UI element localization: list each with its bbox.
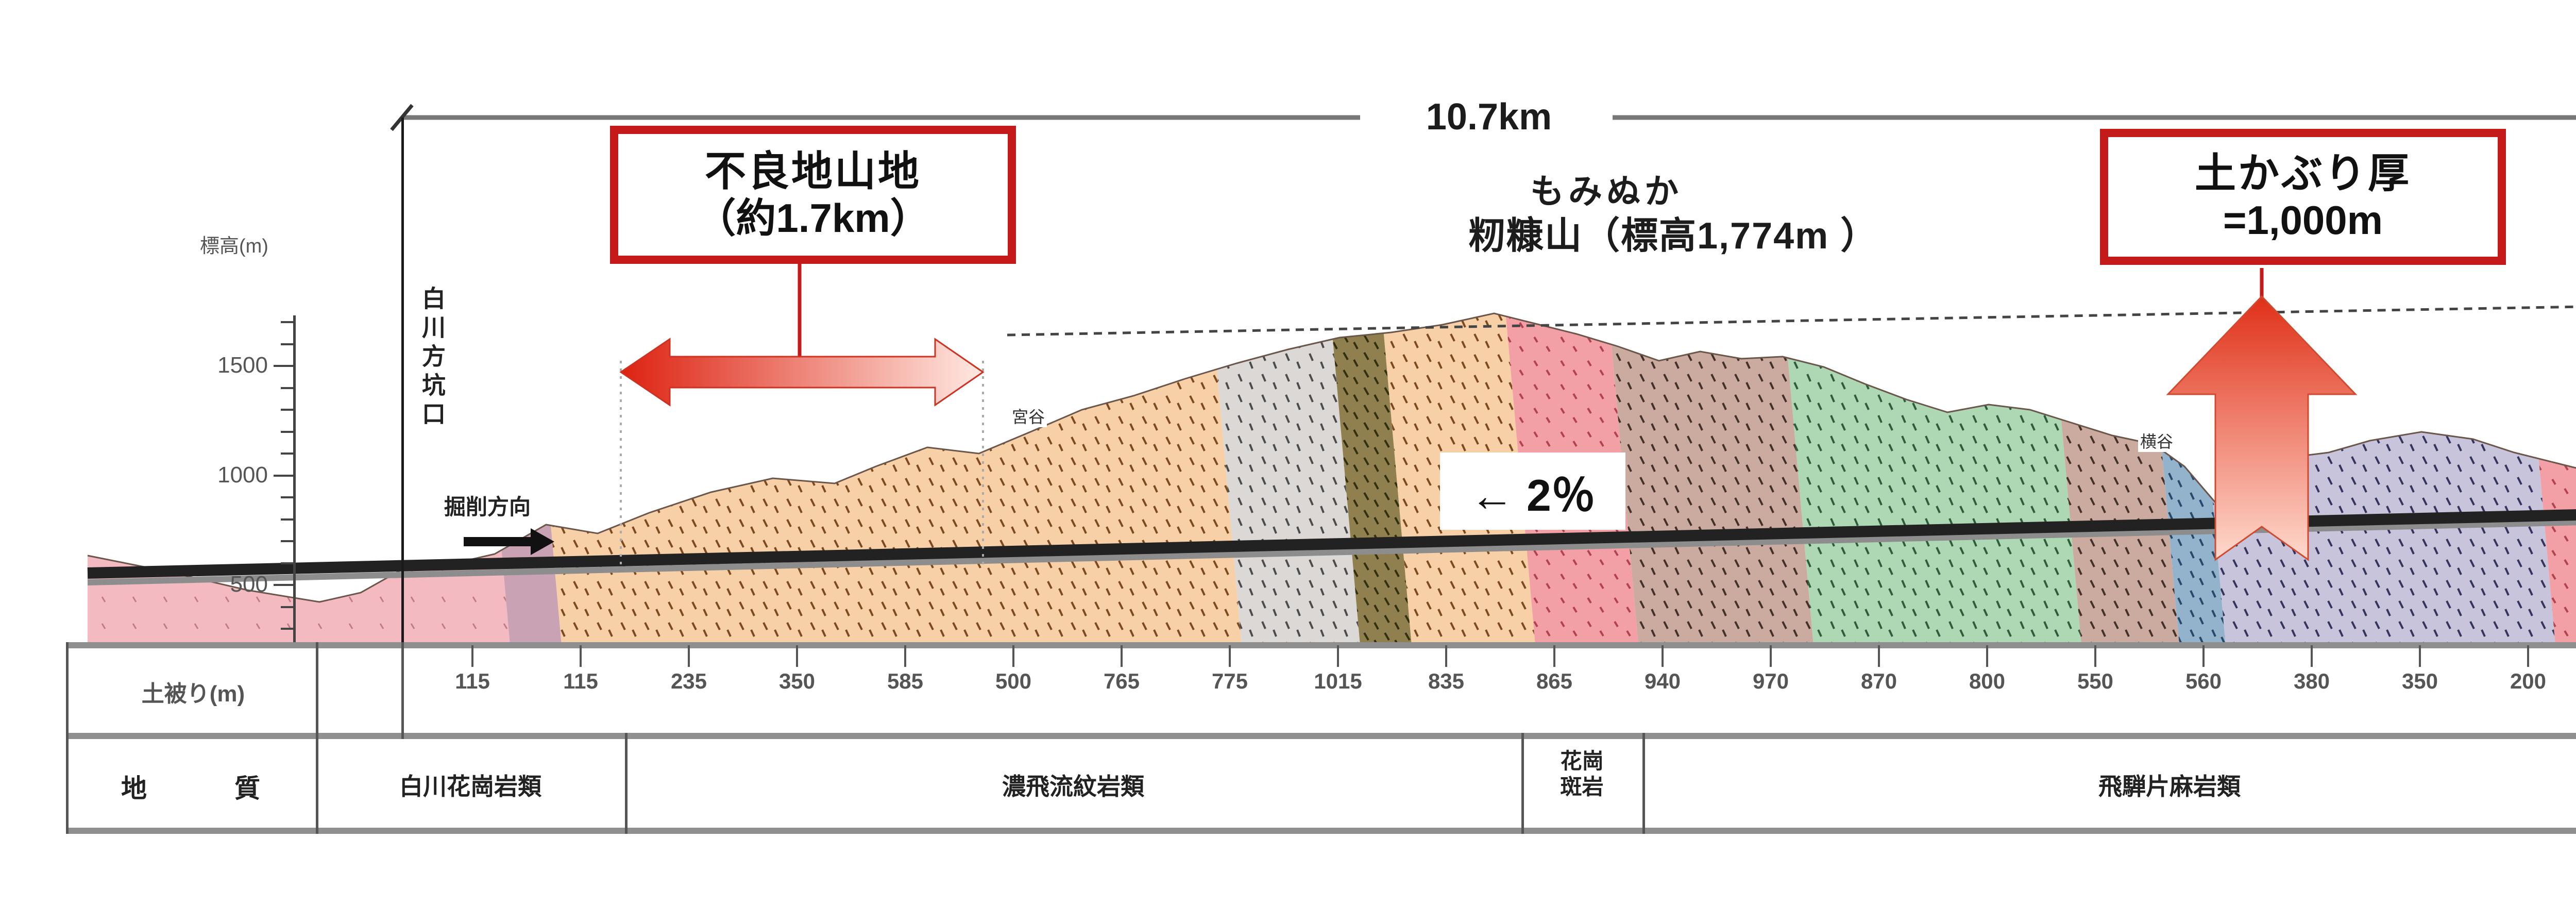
cover-value: 380 [2265,669,2358,694]
valley-right-label: 横谷 [2138,432,2175,452]
bad-ground-box: 不良地山地 （約1.7km） [610,126,1016,264]
cover-value: 235 [642,669,735,694]
cover-value: 115 [426,669,519,694]
geology-cell-nohi: 濃飛流紋岩類 [625,768,1521,802]
mountain-name: 籾糠山（標高1,774m ） [1468,213,1878,259]
cover-tick [2419,645,2421,667]
geology-cell-porphyry-line1: 花崗 [1521,748,1642,774]
excavation-direction-label: 掘削方向 [444,490,531,521]
cover-value: 350 [2374,669,2466,694]
cover-tick [1012,645,1014,667]
cover-tick [1986,645,1988,667]
excavation-direction-arrowhead [531,528,554,555]
cover-value: 870 [1833,669,1925,694]
axis-tick [274,475,294,477]
geology-cell-shirakawa: 白川花崗岩類 [326,768,615,802]
cover-value: 800 [1941,669,2033,694]
cover-value: 115 [534,669,627,694]
cover-tick [580,645,582,667]
cover-row-header: 土被り(m) [82,675,304,708]
cover-tick [688,645,690,667]
left-portal-label: 白川方坑口 [415,286,449,430]
table-top-border [66,642,2576,648]
cover-tick [1770,645,1772,667]
geology-cell-porphyry: 花崗 斑岩 [1521,748,1642,800]
cover-value: 500 [967,669,1060,694]
axis-tick [281,321,294,323]
excavation-direction-arrow [464,537,531,546]
table-mid-border [66,733,2576,739]
geology-cell-hida: 飛騨片麻岩類 [1642,768,2576,802]
geology-cell-porphyry-line2: 斑岩 [1521,774,1642,800]
valley-left-label: 宮谷 [1010,407,1047,427]
axis-tick-label: 500 [180,572,268,597]
cover-tick [1337,645,1339,667]
cover-tick [1445,645,1447,667]
cover-value: 865 [1508,669,1601,694]
cover-tick [1878,645,1880,667]
geology-header-char1: 地 [121,768,147,805]
total-length-label: 10.7km [1370,96,1607,138]
axis-tick [281,387,294,389]
axis-tick [274,365,294,367]
axis-tick [274,584,294,586]
cover-value: 1015 [1292,669,1384,694]
bad-ground-line2: （約1.7km） [696,195,930,242]
elevation-axis-title: 標高(m) [200,230,268,258]
cover-tick [1553,645,1555,667]
overburden-box: 土かぶり厚 =1,000m [2100,129,2506,265]
gradient-label: ← 2％ [1440,452,1625,530]
cover-value: 550 [2049,669,2142,694]
cover-tick [904,645,906,667]
cover-value: 765 [1075,669,1168,694]
cover-value: 350 [751,669,843,694]
table-header-sep [316,642,318,834]
axis-tick [281,431,294,433]
cover-tick [2094,645,2096,667]
geology-header-char2: 質 [234,768,260,805]
axis-tick [281,606,294,608]
table-portal-sep-row1 [401,642,404,739]
geology-row-header: 地 質 [72,768,309,805]
overburden-line2: =1,000m [2223,197,2383,244]
axis-tick [281,628,294,630]
axis-tick [281,343,294,345]
table-left-border [66,642,69,834]
cover-tick [1229,645,1231,667]
cover-tick [796,645,798,667]
cover-tick [2311,645,2313,667]
cover-value: 200 [2482,669,2574,694]
cover-value: 585 [859,669,952,694]
cover-value: 560 [2157,669,2250,694]
cover-value: 970 [1724,669,1817,694]
bad-ground-line1: 不良地山地 [705,148,921,195]
axis-tick [281,518,294,521]
axis-tick-label: 1500 [180,353,268,378]
cover-tick [1662,645,1664,667]
axis-tick [281,540,294,542]
overburden-line1: 土かぶり厚 [2195,150,2411,197]
cover-tick [2202,645,2205,667]
cover-tick [471,645,473,667]
left-portal-line [401,118,404,645]
axis-tick [281,452,294,455]
cover-tick [1121,645,1123,667]
cover-tick [2527,645,2529,667]
axis-tick [281,409,294,411]
ridge-dashed-line [1007,305,2576,335]
mountain-label: もみぬか 籾糠山（標高1,774m ） [1468,170,1878,259]
cover-value: 835 [1400,669,1493,694]
axis-tick-label: 1000 [180,462,268,488]
axis-tick [281,562,294,564]
mountain-furigana: もみぬか [1530,170,1878,213]
bad-ground-extent-arrow [621,339,983,405]
axis-tick [281,496,294,498]
table-bottom-border [66,828,2576,834]
cover-value: 940 [1616,669,1709,694]
cover-value: 775 [1183,669,1276,694]
